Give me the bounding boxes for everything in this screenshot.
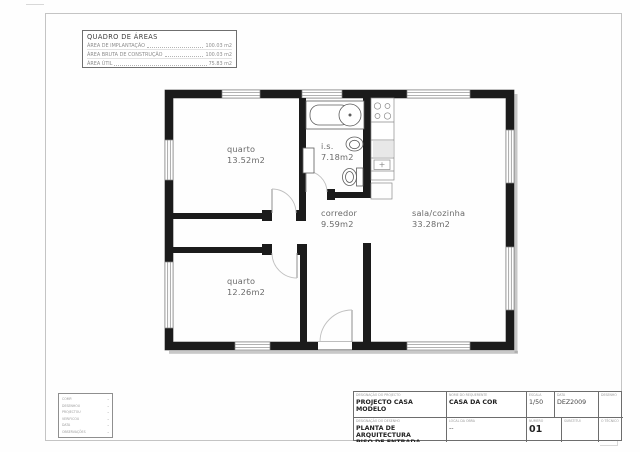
drawing-title-line2: PISO DE ENTRADA (354, 439, 446, 443)
stamp-label: VERIFICOU (62, 417, 79, 421)
window-bottom-1 (235, 342, 270, 350)
title-block-scale-cell: ESCALA 1/50 (526, 392, 554, 417)
stamp-value: – (107, 404, 109, 408)
window-left-1 (165, 140, 173, 180)
stamp-value: – (107, 417, 109, 421)
entrance-opening (318, 342, 352, 350)
drawing-sheet: QUADRO DE ÁREAS ÁREA DE IMPLANTAÇÃO 100.… (0, 0, 640, 452)
date-value: DEZ2009 (555, 398, 598, 406)
stamp-label: COMP. (62, 397, 72, 401)
room-label-quarto-bottom: quarto (227, 276, 255, 286)
title-block-number-cell: NÚMERO 01 (526, 417, 561, 442)
stamp-row: DESENHOU– (62, 404, 109, 408)
fridge (371, 183, 392, 199)
window-left-2 (165, 262, 173, 328)
window-top-3 (407, 90, 470, 98)
client-name: CASA DA COR (447, 398, 526, 406)
stamp-value: – (107, 397, 109, 401)
stamp-row: DATA– (62, 423, 109, 427)
window-top-2 (302, 90, 342, 98)
stamp-value: – (107, 410, 109, 414)
scale-value: 1/50 (527, 398, 554, 406)
door-quarto-top (272, 189, 296, 213)
replaces-label: SUBSTITUI (562, 418, 598, 424)
door-entrance (320, 310, 352, 342)
room-label-corredor: corredor (321, 208, 358, 218)
room-area-quarto-bottom: 12.26m2 (227, 287, 265, 297)
revision-stamp: COMP.– DESENHOU– PROJECTOU– VERIFICOU– D… (58, 393, 113, 438)
title-block-client-cell: NOME DO REQUERENTE CASA DA COR (446, 392, 526, 417)
washbasin (346, 137, 363, 151)
stamp-label: OBSERVAÇÕES (62, 430, 86, 434)
stamp-value: – (107, 423, 109, 427)
bathroom-cabinet (303, 148, 314, 173)
site-value: -- (447, 424, 526, 432)
bathtub (306, 101, 364, 129)
room-label-quarto-top: quarto (227, 144, 255, 154)
window-right-2 (506, 247, 514, 310)
room-area-is: 7.18m2 (321, 152, 354, 162)
room-label-sala-cozinha: sala/cozinha (412, 208, 465, 218)
room-area-corredor: 9.59m2 (321, 219, 354, 229)
toilet (343, 168, 364, 186)
title-block-drawing-cell: DESENHO (598, 392, 623, 417)
title-block-date-cell: DATA DEZ2009 (554, 392, 598, 417)
floor-plan: quarto 13.52m2 i.s. 7.18m2 corredor 9.59… (0, 0, 640, 452)
title-block: DESIGNAÇÃO DO PROJECTO PROJECTO CASA MOD… (353, 391, 622, 441)
room-area-sala-cozinha: 33.28m2 (412, 219, 450, 229)
stamp-row: PROJECTOU– (62, 410, 109, 414)
stamp-label: DATA (62, 423, 70, 427)
drawing-title-line1: PLANTA DE ARQUITECTURA (354, 424, 446, 439)
project-name: PROJECTO CASA MODELO (354, 398, 446, 413)
stamp-label: DESENHOU (62, 404, 80, 408)
door-quarto-bottom (272, 253, 297, 278)
window-right-1 (506, 130, 514, 183)
stamp-row: VERIFICOU– (62, 417, 109, 421)
room-area-quarto-top: 13.52m2 (227, 155, 265, 165)
door-bathroom (306, 171, 327, 192)
title-block-technician-cell: O TÉCNICO (598, 417, 623, 442)
stamp-row: OBSERVAÇÕES– (62, 430, 109, 434)
room-label-is: i.s. (321, 141, 334, 151)
title-block-project-cell: DESIGNAÇÃO DO PROJECTO PROJECTO CASA MOD… (354, 392, 446, 417)
stamp-label: PROJECTOU (62, 410, 81, 414)
window-top-1 (222, 90, 260, 98)
title-block-replaces-cell: SUBSTITUI (561, 417, 598, 442)
drawing-value (599, 398, 623, 399)
kitchen-counter (371, 98, 394, 199)
title-block-site-cell: LOCAL DA OBRA -- (446, 417, 526, 442)
technician-label: O TÉCNICO (599, 418, 623, 424)
stamp-row: COMP.– (62, 397, 109, 401)
stamp-value: – (107, 430, 109, 434)
number-value: 01 (527, 424, 561, 435)
title-block-drawing-title-cell: DESIGNAÇÃO DO DESENHO PLANTA DE ARQUITEC… (354, 417, 446, 442)
window-bottom-2 (407, 342, 470, 350)
